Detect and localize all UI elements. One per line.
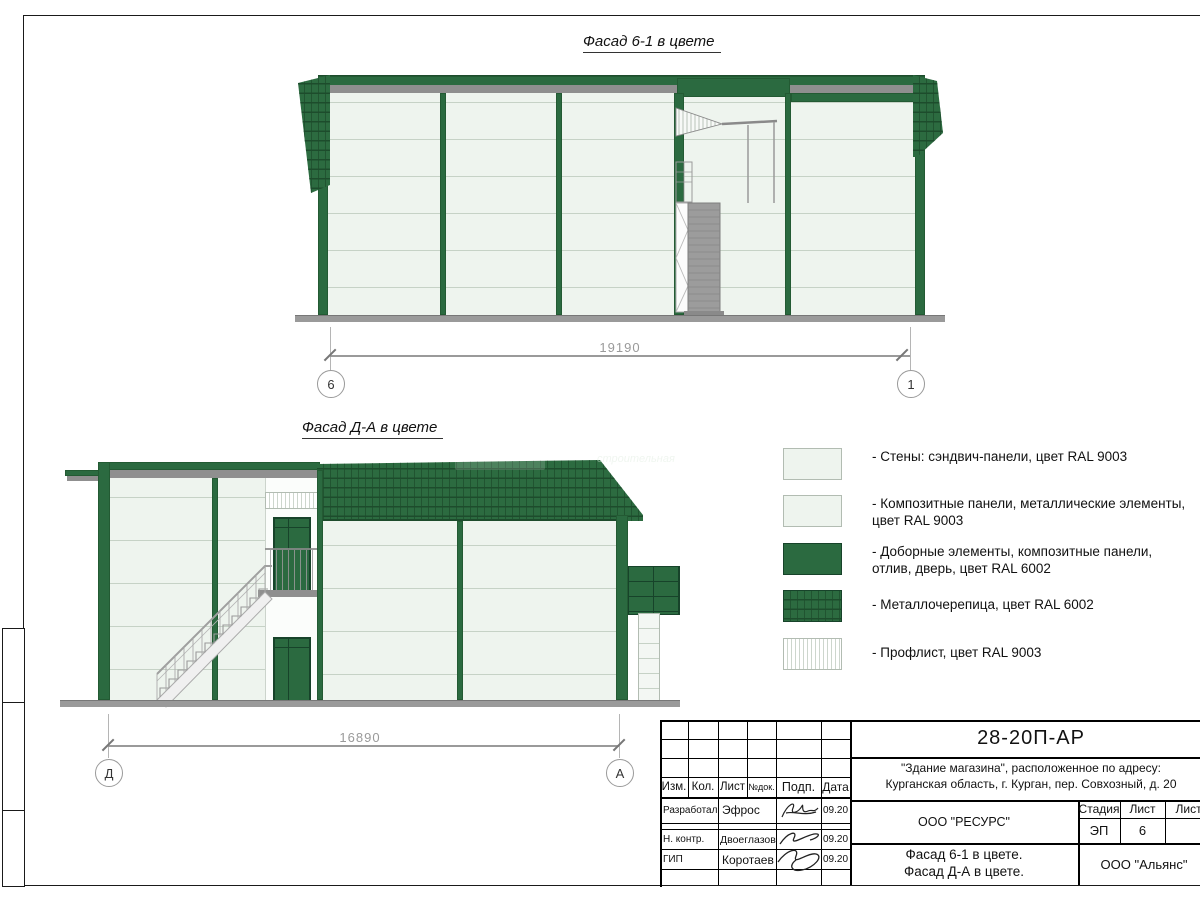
stair-balusters [157,566,265,700]
watermark-text: строительная [597,453,675,465]
legend-text: отлив, дверь, цвет RAL 6002 [872,561,1200,578]
axis-marker-6: 6 [317,370,345,398]
attachment-column [638,613,660,703]
extension-line [619,714,620,758]
col-ndok: №док. [747,777,776,797]
binding-box [2,628,25,704]
sheet-title-line2: Фасад Д-А в цвете. [850,863,1078,880]
facade-61-right-fascia [791,93,915,102]
legend-item: - Металлочерепица, цвет RAL 6002 [872,597,1200,614]
stage-label: Стадия [1078,800,1120,818]
facade-da-corner-trim [317,470,323,700]
facade-61-exterior-stair [670,100,795,315]
facade-da-title: Фасад Д-А в цвете [302,419,443,439]
legend-item: - Профлист, цвет RAL 9003 [872,645,1200,662]
col-data: Дата [821,777,850,797]
facade-61-ground-line [295,315,945,322]
legend-text: - Стены: сэндвич-панели, цвет RAL 9003 [872,449,1200,466]
legend-text: - Доборные элементы, композитные панели, [872,544,1200,561]
facade-da-right-wall [323,521,616,700]
facade-61-coping [318,85,925,93]
facade-61-mullion [440,93,446,315]
facade-da-ground-line [60,700,680,707]
sheets-label: Листов [1165,800,1200,818]
extension-line [330,327,331,371]
stair-stringer [157,592,272,707]
legend-item: - Стены: сэндвич-панели, цвет RAL 9003 [872,449,1200,466]
project-address-line2: Курганская область, г. Курган, пер. Совх… [850,776,1200,792]
contractor-name: ООО "Альянс" [1078,843,1200,885]
extension-line [108,714,109,758]
extension-line [910,327,911,371]
facade-da-exterior-stair [120,530,280,710]
facade-61-title: Фасад 6-1 в цвете [583,33,721,53]
dimension-value: 16890 [295,730,425,745]
stair-steps-stack [688,203,720,312]
binding-box [2,702,25,812]
dimension-line [330,355,910,357]
composite-panel-block [628,566,680,615]
sheet-title-line1: Фасад 6-1 в цвете. [850,846,1078,863]
row-role: Разработал [663,799,717,821]
facade-da-mullion [457,521,463,700]
facade-da-corner-column [98,462,110,700]
dimension-value: 19190 [555,340,685,355]
legend-swatch-metaltile [783,590,842,622]
sheet-value: 6 [1120,818,1165,843]
facade-da-parapet-band [98,462,320,470]
binding-box [2,810,25,887]
col-izm: Изм. [660,777,688,797]
signature [774,828,826,874]
doc-number: 28-20П-АР [850,720,1200,757]
project-address-line1: "Здание магазина", расположенное по адре… [850,760,1200,776]
stage-value: ЭП [1078,818,1120,843]
stair-stringer [676,203,688,312]
legend-text: - Металлочерепица, цвет RAL 6002 [872,597,1200,614]
row-role: ГИП [663,850,717,869]
legend-text: - Профлист, цвет RAL 9003 [872,645,1200,662]
company-name: ООО "РЕСУРС" [850,800,1078,843]
axis-marker-1: 1 [897,370,925,398]
row-role: Н. контр. [663,830,717,849]
col-kol: Кол. [688,777,718,797]
dimension-line [108,745,619,747]
sheet-label: Лист [1120,800,1165,818]
axis-marker-a: А [606,759,634,787]
facade-da-door-canopy [265,492,319,509]
stair-canopy-proflist [676,108,722,136]
facade-61-wall [318,93,925,315]
axis-marker-d: Д [95,759,123,787]
roof-eave-line [317,519,617,521]
legend-item: - Композитные панели, металлические элем… [872,496,1200,529]
facade-da-right-column [616,515,628,700]
drawing-sheet: Фасад 6-1 в цвете 19190 6 1 [0,0,1200,900]
legend-text: - Композитные панели, металлические элем… [872,496,1200,513]
watermark-logo [455,450,545,470]
legend-swatch-proflist [783,638,842,670]
legend-swatch-composite [783,495,842,527]
canopy-beam [722,121,777,124]
facade-da-coping [105,470,317,478]
row-name: Эфрос [722,799,775,821]
facade-61-mullion [556,93,562,315]
row-name: Двоеглазов [720,830,776,849]
legend-item: - Доборные элементы, композитные панели,… [872,544,1200,577]
legend-text: цвет RAL 9003 [872,513,1200,530]
row-date: 09.20 [821,799,850,821]
signature [778,799,820,822]
legend-swatch-trim [783,543,842,575]
col-list: Лист [718,777,747,797]
facade-61-stairbay-fascia [677,78,790,97]
col-podp: Подп. [776,777,821,797]
row-name: Коротаев [722,850,775,869]
legend-swatch-walls [783,448,842,480]
